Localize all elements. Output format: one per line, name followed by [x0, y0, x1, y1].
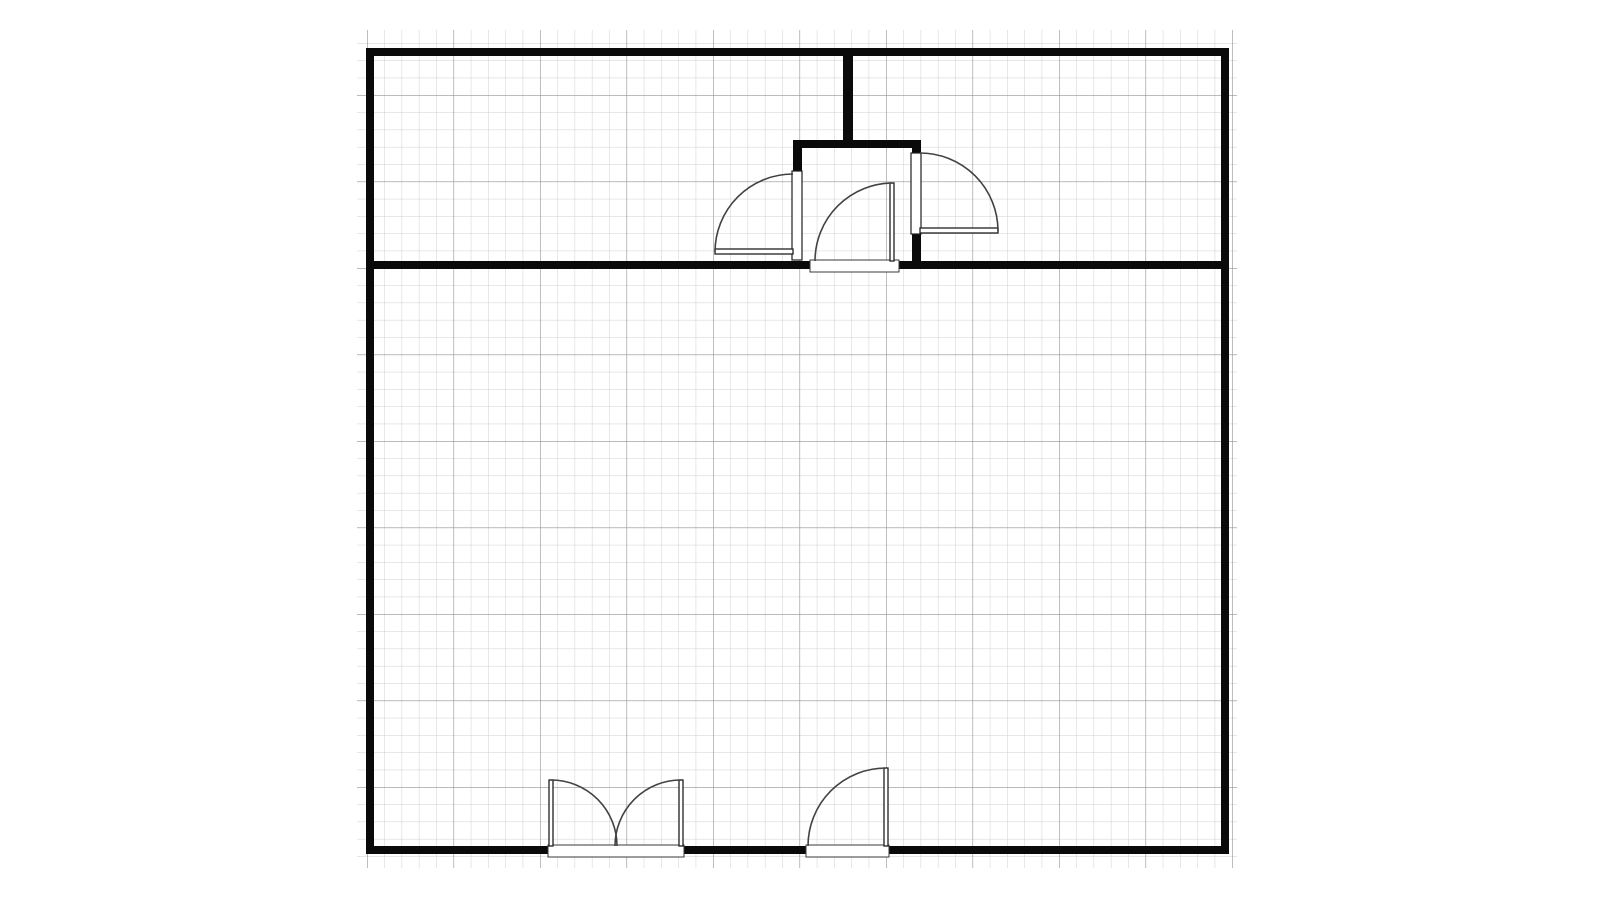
vestibule-bottom-threshold — [810, 260, 899, 272]
vestibule-right-wall-lower — [912, 234, 921, 269]
outer-wall-bottom-left — [366, 846, 549, 854]
floor-plan-canvas — [0, 0, 1600, 900]
outer-wall-bottom-mid — [683, 846, 807, 854]
outer-wall-top — [366, 48, 1229, 56]
outer-wall-right — [1221, 48, 1229, 854]
divider-wall-left — [366, 261, 811, 269]
divider-wall-right — [898, 261, 1229, 269]
vestibule-top-wall — [793, 140, 921, 148]
double-door-right-leaf — [679, 780, 683, 846]
floor-plan-drawing — [0, 0, 1600, 900]
vestibule-right-door-opening — [911, 153, 921, 234]
vestibule-left-stub — [793, 140, 802, 171]
top-partition-stub — [843, 50, 853, 145]
double-door-left-leaf — [549, 780, 553, 846]
vestibule-right-door-leaf — [920, 228, 998, 233]
double-door-threshold — [548, 845, 684, 857]
outer-wall-bottom-right — [888, 846, 1229, 854]
vestibule-right-stub-upper — [912, 140, 921, 153]
vestibule-left-door-opening — [792, 171, 802, 260]
vestibule-center-door-leaf — [890, 183, 894, 261]
vestibule-left-door-leaf — [715, 249, 793, 254]
outer-wall-left — [366, 48, 374, 854]
single-door-threshold — [806, 845, 889, 857]
single-door-leaf — [884, 768, 888, 846]
